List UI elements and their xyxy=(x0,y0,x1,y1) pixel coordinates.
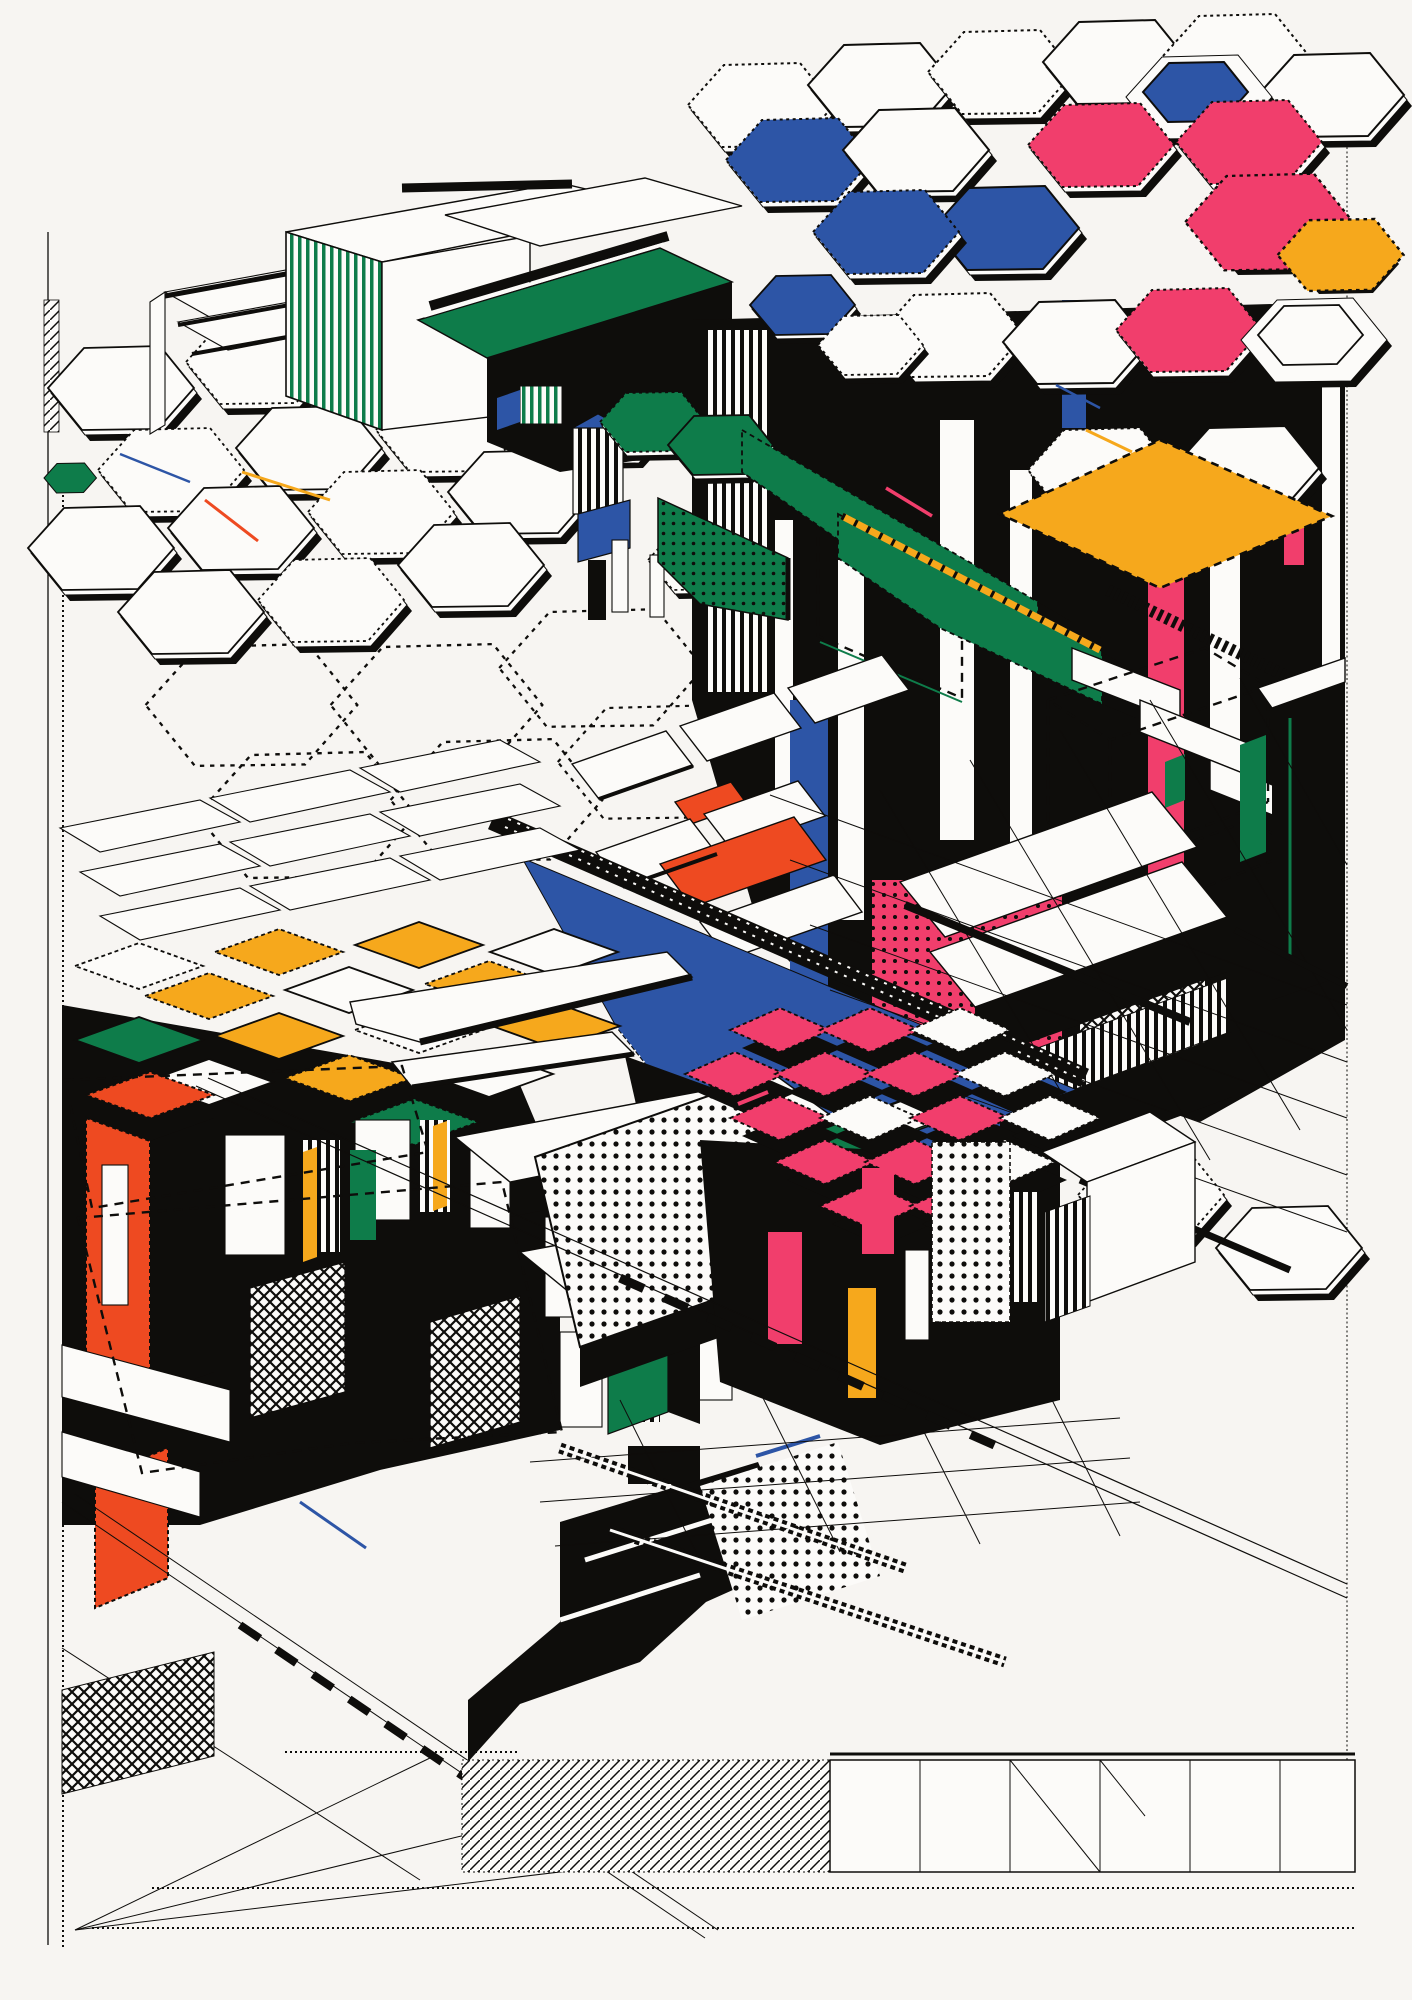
left-hatch-sliver xyxy=(44,300,59,432)
hall-striped-face xyxy=(286,232,382,430)
yellow-streak xyxy=(303,1147,317,1262)
hall-roof-band xyxy=(402,184,572,188)
dotted-tower xyxy=(932,1142,1010,1322)
white-face xyxy=(225,1135,285,1255)
pink-pillar xyxy=(862,1168,894,1254)
yellow-streak xyxy=(433,1121,447,1211)
pink-pillar xyxy=(768,1232,802,1344)
poster: Axonometric block-city illustration in p… xyxy=(0,0,1412,2000)
tower-side-ink xyxy=(150,1118,214,1395)
white-pillar xyxy=(905,1250,929,1340)
hatch-strip xyxy=(462,1760,830,1872)
white-pillar xyxy=(838,560,864,920)
tower-window xyxy=(102,1165,128,1305)
green-striped-fin xyxy=(520,386,562,424)
green-panel xyxy=(1240,735,1266,862)
corner-grid-plate xyxy=(462,1754,1355,1872)
hatch-cube xyxy=(430,1296,520,1448)
green-panel xyxy=(1165,754,1185,808)
white-pillar xyxy=(612,540,628,612)
grid-plate xyxy=(830,1760,1355,1872)
ink-block xyxy=(588,560,606,620)
hatch-cube xyxy=(250,1262,345,1418)
striped-face xyxy=(1014,1192,1040,1302)
artwork-canvas: Axonometric block-city illustration in p… xyxy=(0,0,1412,2000)
striped-pillar xyxy=(705,330,769,692)
striped-wedge xyxy=(1045,1196,1090,1322)
